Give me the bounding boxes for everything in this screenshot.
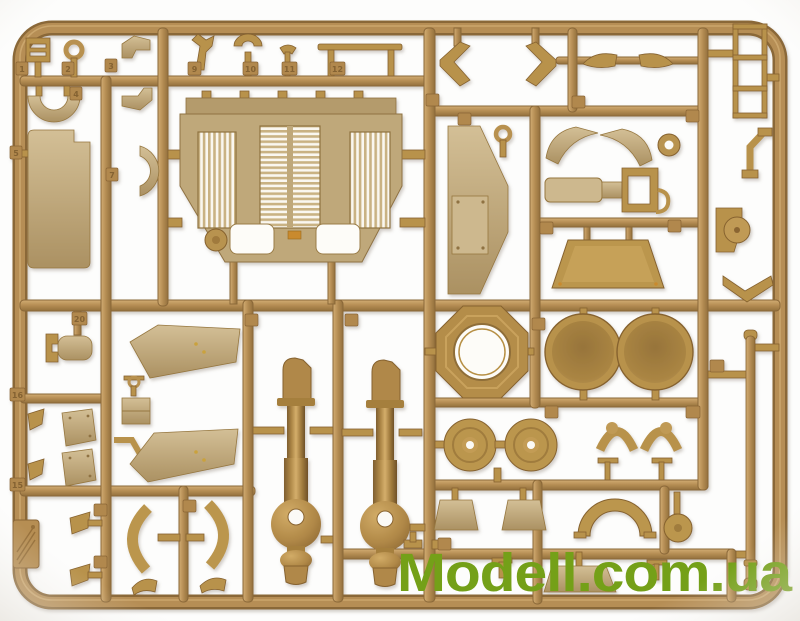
tag-2: 2 [62, 62, 74, 75]
tag-7: 7 [106, 168, 118, 181]
svg-text:11: 11 [284, 65, 296, 74]
deck-opening-right [316, 224, 360, 254]
tag-1: 1 [16, 62, 28, 75]
louver-grille-left [198, 132, 236, 228]
ball-gate-right [410, 524, 425, 531]
svg-text:16: 16 [12, 391, 24, 400]
watermark: Modell.com.ua [397, 543, 793, 603]
svg-text:9: 9 [192, 65, 198, 74]
svg-text:4: 4 [73, 90, 79, 99]
deck-opening-left [230, 224, 274, 254]
mudflap-lower-part [62, 449, 96, 486]
svg-text:3: 3 [108, 62, 114, 71]
svg-text:5: 5 [13, 149, 19, 158]
tag-12: 12 [330, 62, 345, 75]
sprue-photo-canvas: 1 2 3 4 5 7 9 10 11 12 15 16 20 [0, 0, 800, 621]
tag-4: 4 [70, 87, 82, 100]
sprue-photo: 1 2 3 4 5 7 9 10 11 12 15 16 20 [0, 0, 800, 621]
tag-3: 3 [105, 59, 117, 72]
tag-9: 9 [188, 62, 201, 75]
trapezoid-tray-part [552, 240, 664, 288]
svg-text:1: 1 [19, 65, 25, 74]
junction-box-part [122, 398, 150, 424]
svg-text:2: 2 [65, 65, 71, 74]
maker-logo-plate-part [13, 520, 39, 568]
tag-11: 11 [282, 62, 297, 75]
svg-text:20: 20 [74, 315, 86, 324]
tag-15: 15 [10, 478, 25, 491]
louver-grille-center [260, 126, 320, 228]
orange-chip [288, 231, 301, 239]
louver-grille-right [350, 132, 390, 228]
svg-text:7: 7 [109, 171, 115, 180]
tag-10: 10 [243, 62, 258, 75]
washer-ring-part [658, 134, 680, 156]
mudflap-upper-part [62, 409, 96, 446]
svg-text:10: 10 [245, 65, 257, 74]
svg-text:12: 12 [332, 65, 343, 74]
tag-20: 20 [72, 312, 87, 325]
tag-16: 16 [10, 388, 25, 401]
svg-text:15: 15 [12, 481, 24, 490]
fuel-cap [205, 229, 227, 251]
tag-5: 5 [10, 146, 22, 159]
ball-gate-left [321, 536, 333, 543]
